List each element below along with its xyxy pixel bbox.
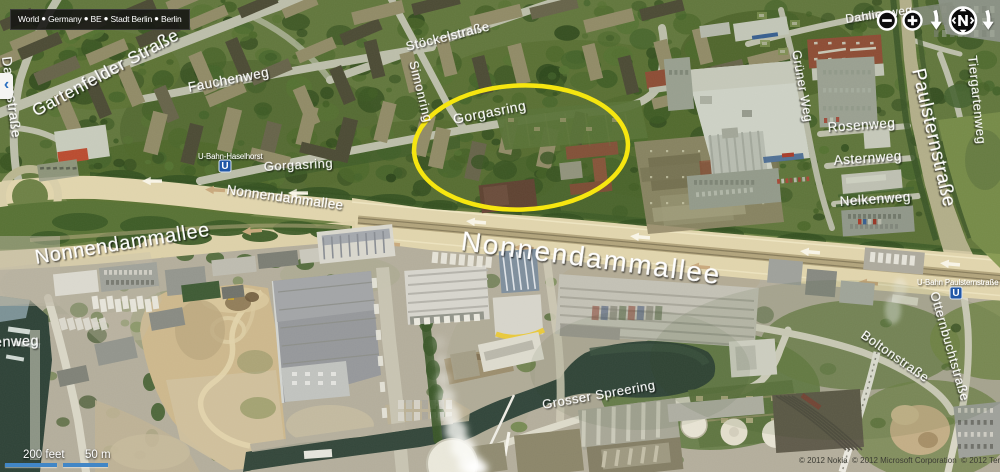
svg-text:U-Bahn-Haselhorst: U-Bahn-Haselhorst — [198, 152, 264, 161]
svg-text:U-Bahn Paulsternstraße: U-Bahn Paulsternstraße — [917, 278, 998, 287]
svg-text:U: U — [952, 288, 959, 299]
svg-text:enweg: enweg — [0, 333, 39, 351]
svg-text:U: U — [221, 161, 228, 172]
